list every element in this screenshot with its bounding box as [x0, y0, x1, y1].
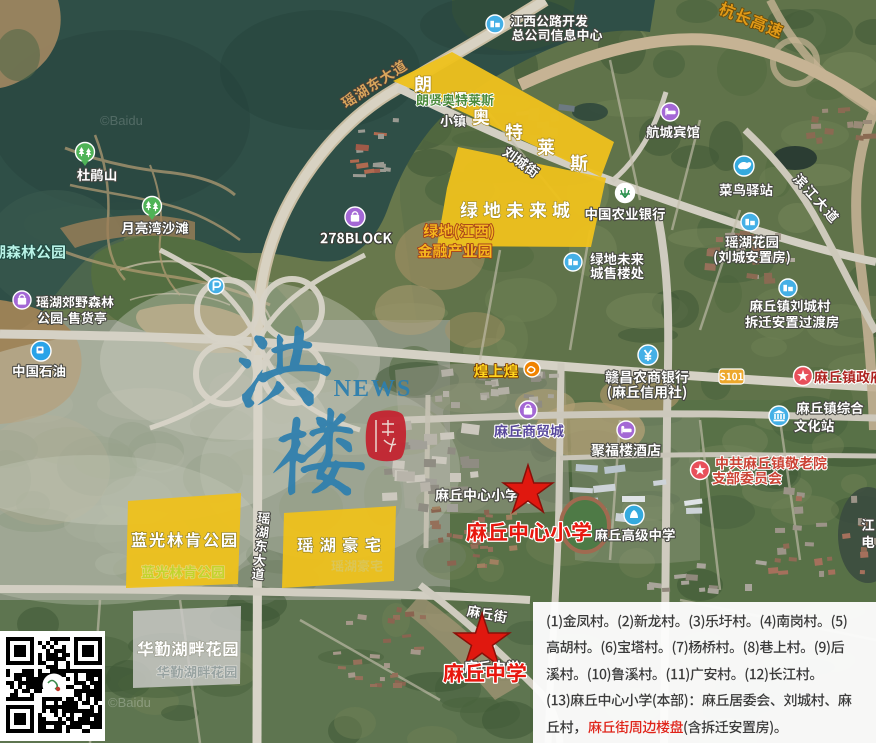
- svg-text:©Baidu: ©Baidu: [108, 695, 151, 710]
- svg-text:NEWS: NEWS: [334, 376, 413, 402]
- svg-text:©Baidu: ©Baidu: [100, 113, 143, 128]
